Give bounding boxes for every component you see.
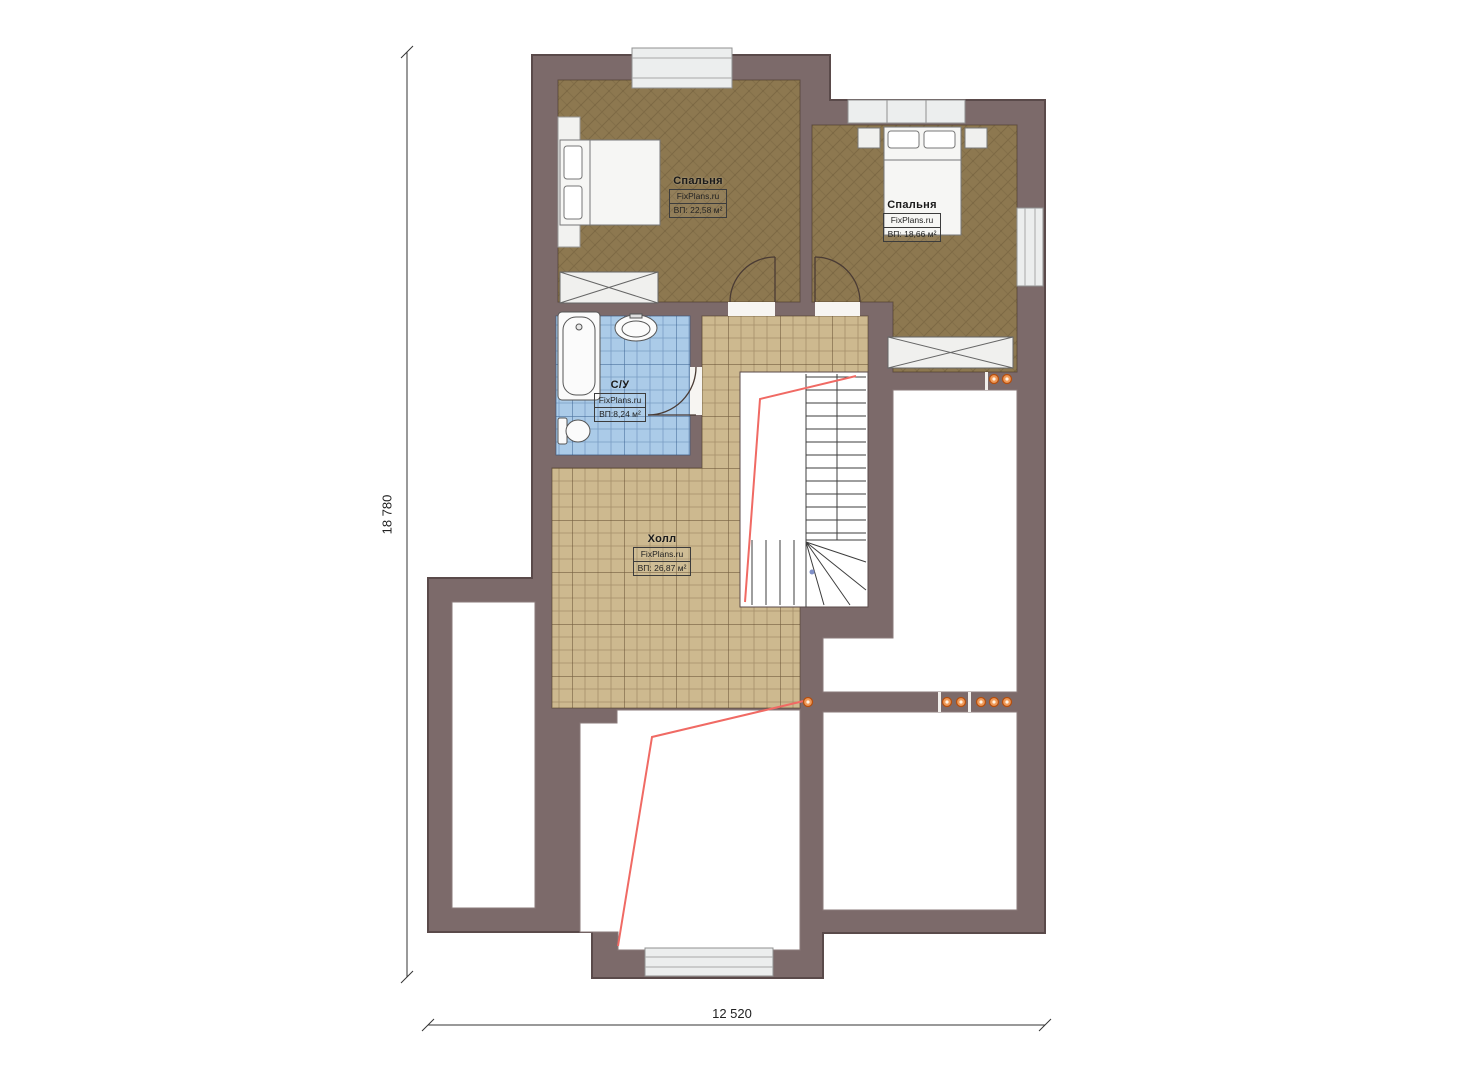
- bedroom1-bed: [560, 140, 660, 225]
- bedroom1-brand: FixPlans.ru: [670, 190, 727, 203]
- bedroom2-door-opening: [815, 302, 860, 316]
- vent-dot: [943, 698, 952, 707]
- bedroom1-label-box: FixPlans.ru ВП: 22,58 м²: [669, 189, 728, 218]
- vent-dot: [957, 698, 966, 707]
- vent-dot: [990, 698, 999, 707]
- window-top-dormer: [632, 48, 732, 88]
- hall-label: Холл FixPlans.ru ВП: 26,87 м²: [612, 533, 712, 576]
- bedroom1-label: Спальня FixPlans.ru ВП: 22,58 м²: [648, 175, 748, 218]
- hall-brand: FixPlans.ru: [634, 548, 691, 561]
- side-room-left-floor: [452, 602, 535, 908]
- vent-dot: [990, 375, 999, 384]
- vent-dot: [1003, 698, 1012, 707]
- bedroom2-name: Спальня: [862, 199, 962, 211]
- bedroom2-label: Спальня FixPlans.ru ВП: 18,66 м²: [862, 199, 962, 242]
- dimension-line-vertical: [401, 46, 413, 983]
- hall-label-box: FixPlans.ru ВП: 26,87 м²: [633, 547, 692, 576]
- window-bedroom2-top: [848, 100, 965, 123]
- vent-dot: [1003, 375, 1012, 384]
- bathroom-brand: FixPlans.ru: [595, 394, 646, 407]
- hall-name: Холл: [612, 533, 712, 545]
- bedroom1-name: Спальня: [648, 175, 748, 187]
- dimension-height-text: 18 780: [380, 480, 395, 550]
- bathroom-label-box: FixPlans.ru ВП:8,24 м²: [594, 393, 647, 422]
- bedroom2-wardrobe: [888, 337, 1013, 368]
- bedroom1-door-opening: [728, 302, 775, 316]
- hall-area: ВП: 26,87 м²: [634, 561, 691, 575]
- bathroom-label: С/У FixPlans.ru ВП:8,24 м²: [570, 379, 670, 422]
- bedroom2-brand: FixPlans.ru: [884, 214, 941, 227]
- floor-plan-drawing: [0, 0, 1474, 1080]
- bedroom2-area: ВП: 18,66 м²: [884, 227, 941, 241]
- window-bottom-dormer: [645, 948, 773, 976]
- bedroom1-wardrobe: [560, 272, 658, 303]
- vent-dot: [977, 698, 986, 707]
- window-right-wall: [1017, 208, 1043, 286]
- side-room-bottom-center-floor: [580, 710, 800, 950]
- floor-plan-page: Спальня FixPlans.ru ВП: 22,58 м² Спальня…: [0, 0, 1474, 1080]
- side-room-right-lower-floor: [823, 712, 1017, 910]
- bathroom-name: С/У: [570, 379, 670, 391]
- bedroom2-label-box: FixPlans.ru ВП: 18,66 м²: [883, 213, 942, 242]
- bathroom-area: ВП:8,24 м²: [595, 407, 646, 421]
- bedroom1-area: ВП: 22,58 м²: [670, 203, 727, 217]
- vent-dot: [804, 698, 813, 707]
- dimension-width-text: 12 520: [682, 1006, 782, 1021]
- stair-rail-post: [810, 570, 815, 575]
